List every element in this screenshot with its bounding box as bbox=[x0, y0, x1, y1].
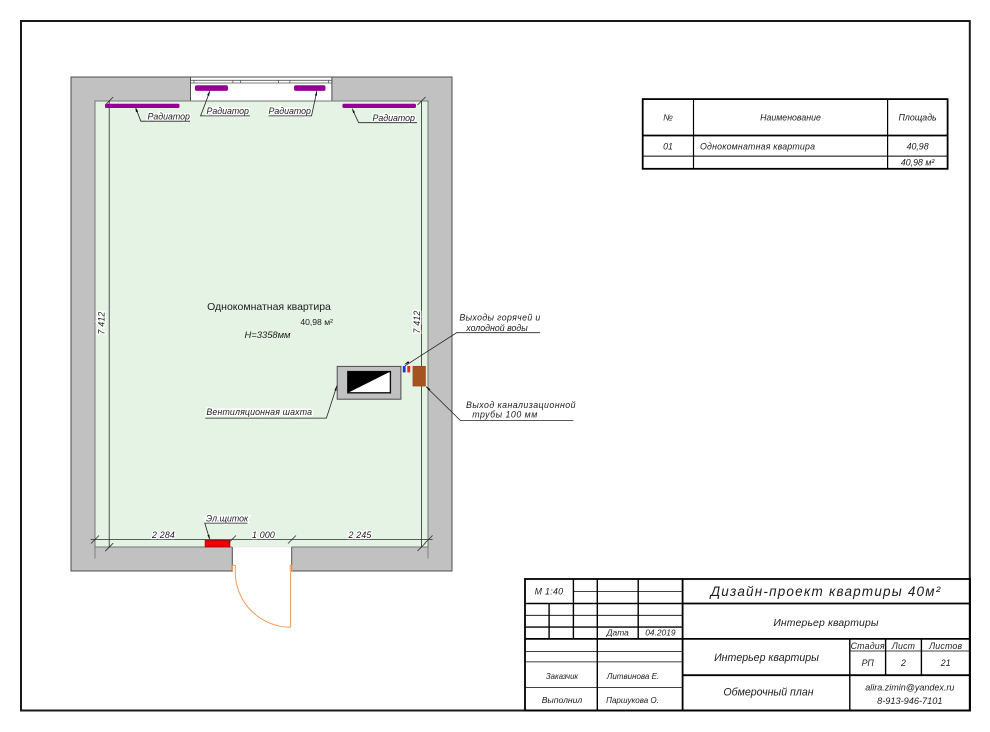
svg-text:Эл.щиток: Эл.щиток bbox=[206, 514, 249, 524]
svg-text:Обмерочный план: Обмерочный план bbox=[723, 687, 813, 699]
svg-text:04.2019: 04.2019 bbox=[645, 627, 676, 637]
svg-text:2 284: 2 284 bbox=[151, 530, 175, 540]
svg-text:Интерьер квартиры: Интерьер квартиры bbox=[714, 652, 819, 664]
svg-text:40,98 м²: 40,98 м² bbox=[300, 317, 333, 327]
svg-text:1 000: 1 000 bbox=[252, 530, 275, 540]
svg-text:Литвинова Е.: Литвинова Е. bbox=[606, 672, 659, 681]
svg-text:Радиатор: Радиатор bbox=[207, 106, 250, 116]
svg-text:Вентиляционная шахта: Вентиляционная шахта bbox=[206, 407, 312, 417]
svg-text:Радиатор: Радиатор bbox=[269, 106, 312, 116]
svg-text:трубы 100 мм: трубы 100 мм bbox=[472, 410, 537, 420]
svg-text:№: № bbox=[663, 113, 673, 123]
svg-text:7 412: 7 412 bbox=[412, 310, 422, 333]
svg-text:7 412: 7 412 bbox=[97, 311, 107, 334]
svg-text:М 1:40: М 1:40 bbox=[535, 587, 564, 597]
svg-text:холодной воды: холодной воды bbox=[465, 323, 528, 333]
svg-text:Выполнил: Выполнил bbox=[542, 695, 583, 705]
svg-text:40,98: 40,98 bbox=[907, 141, 929, 151]
svg-text:Дата: Дата bbox=[606, 627, 629, 637]
svg-text:21: 21 bbox=[940, 658, 951, 668]
svg-text:Однокомнатная квартира: Однокомнатная квартира bbox=[700, 141, 815, 151]
svg-text:Однокомнатная квартира: Однокомнатная квартира bbox=[207, 301, 331, 313]
svg-text:2: 2 bbox=[900, 658, 906, 668]
svg-text:Интерьер квартиры: Интерьер квартиры bbox=[773, 618, 879, 629]
svg-text:Радиатор: Радиатор bbox=[373, 113, 416, 123]
svg-text:8-913-946-7101: 8-913-946-7101 bbox=[877, 696, 942, 706]
svg-text:Площадь: Площадь bbox=[898, 113, 937, 123]
svg-text:Заказчик: Заказчик bbox=[546, 672, 579, 681]
svg-text:H=3358мм: H=3358мм bbox=[245, 329, 292, 340]
svg-text:Наименование: Наименование bbox=[760, 113, 821, 123]
svg-text:2 245: 2 245 bbox=[347, 530, 371, 540]
svg-text:40,98 м²: 40,98 м² bbox=[901, 158, 935, 168]
svg-text:Радиатор: Радиатор bbox=[148, 112, 191, 122]
svg-text:Листов: Листов bbox=[928, 641, 962, 651]
svg-text:Лист: Лист bbox=[891, 641, 915, 651]
svg-text:Стадия: Стадия bbox=[851, 641, 885, 651]
svg-text:Выходы горячей и: Выходы горячей и bbox=[459, 313, 540, 323]
svg-text:01: 01 bbox=[663, 141, 673, 151]
svg-text:Паршукова О.: Паршукова О. bbox=[606, 696, 659, 705]
svg-text:Дизайн-проект квартиры 40м²: Дизайн-проект квартиры 40м² bbox=[709, 584, 942, 599]
svg-text:alira.zimin@yandex.ru: alira.zimin@yandex.ru bbox=[865, 683, 954, 693]
svg-text:РП: РП bbox=[862, 658, 875, 668]
svg-text:Выход канализационной: Выход канализационной bbox=[466, 400, 576, 410]
